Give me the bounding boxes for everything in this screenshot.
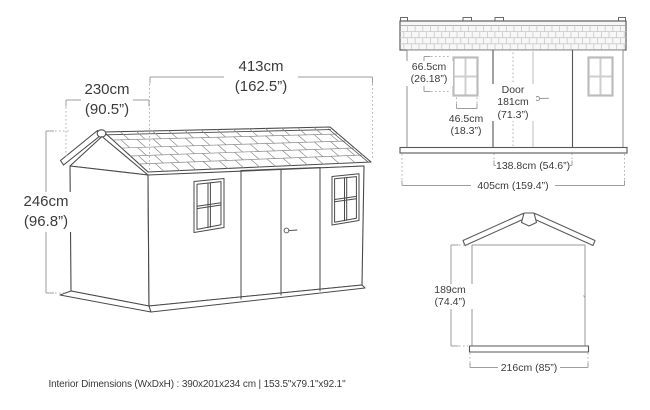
iso-height-label: 246cm (96.8”) xyxy=(17,192,75,232)
side-roof xyxy=(463,213,595,246)
iso-width-label: 413cm (162.5”) xyxy=(224,57,298,97)
side-base xyxy=(470,346,589,352)
front-door-height-cm: 181cm xyxy=(490,96,536,108)
front-window-width-cm: 46.5cm xyxy=(440,113,492,125)
side-height-label: 189cm (74.4”) xyxy=(423,284,477,309)
front-door-width-label: 138.8cm (54.6”) xyxy=(496,160,570,173)
front-door-word: Door xyxy=(490,84,536,96)
side-wall xyxy=(472,245,585,346)
front-door-label: Door 181cm (71.3”) xyxy=(490,84,536,121)
side-height-in: (74.4”) xyxy=(423,296,477,308)
iso-depth-in: (90.5”) xyxy=(81,100,133,120)
diagram-line-art xyxy=(0,0,650,410)
front-roof-band xyxy=(400,21,626,50)
iso-height-cm: 246cm xyxy=(17,192,75,212)
front-window-height-label: 66.5cm (26.18”) xyxy=(405,61,453,86)
iso-width-cm: 413cm xyxy=(224,57,298,77)
iso-left-wall xyxy=(70,166,149,306)
front-window-height-cm: 66.5cm xyxy=(405,61,453,73)
side-height-cm: 189cm xyxy=(423,284,477,296)
front-base xyxy=(400,148,627,154)
side-roof-apex-cap xyxy=(522,213,537,226)
iso-height-in: (96.8”) xyxy=(17,212,75,232)
iso-depth-cm: 230cm xyxy=(81,80,133,100)
shed-dimensions-diagram: 413cm (162.5”) 230cm (90.5”) 246cm (96.8… xyxy=(0,0,650,410)
iso-depth-label: 230cm (90.5”) xyxy=(81,80,133,120)
iso-width-in: (162.5”) xyxy=(224,77,298,97)
front-door-height-in: (71.3”) xyxy=(490,109,536,121)
front-window-height-in: (26.18”) xyxy=(405,73,453,85)
side-width-label: 216cm (85”) xyxy=(498,362,560,375)
front-window-width-label: 46.5cm (18.3”) xyxy=(440,113,492,138)
front-total-width-label: 405cm (159.4”) xyxy=(471,180,555,193)
interior-dimensions-caption: Interior Dimensions (WxDxH) : 390x201x23… xyxy=(36,379,358,390)
iso-roof-apex-cap xyxy=(97,130,106,137)
front-window-width-in: (18.3”) xyxy=(440,125,492,137)
